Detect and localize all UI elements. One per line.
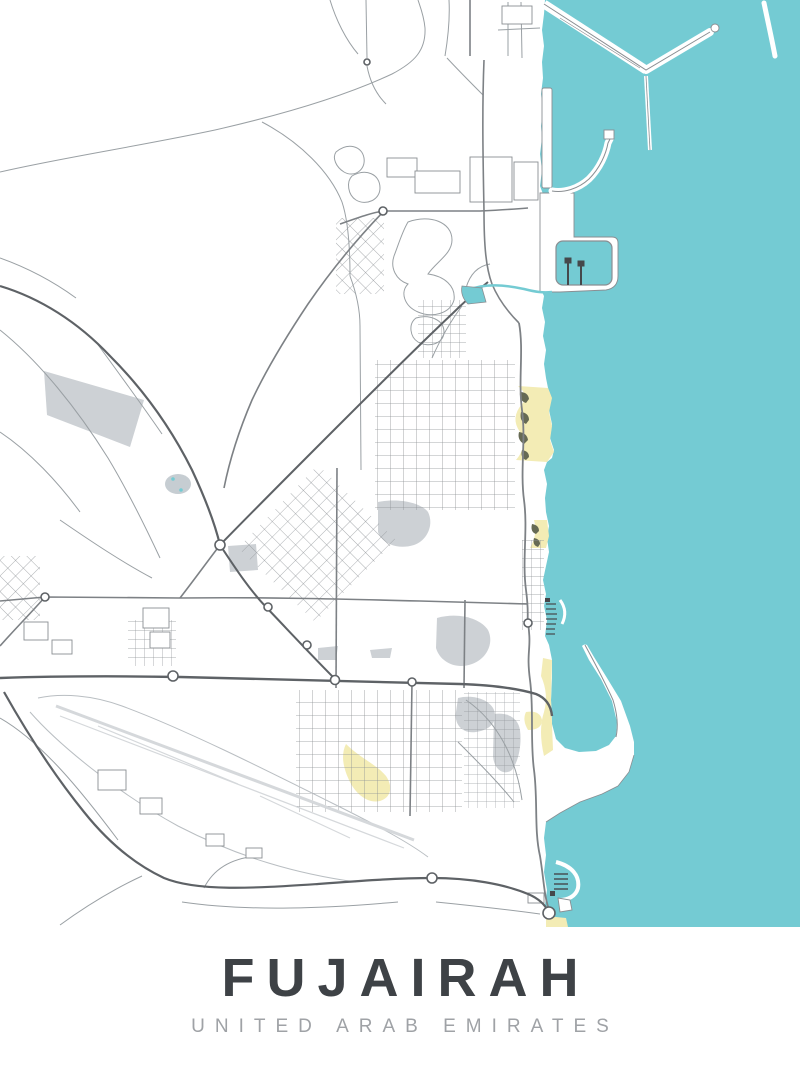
map-poster: FUJAIRAH UNITED ARAB EMIRATES (0, 0, 800, 1067)
map-canvas (0, 0, 800, 928)
quay-strip (542, 88, 552, 188)
poster-subtitle: UNITED ARAB EMIRATES (0, 1016, 800, 1038)
poster-title: FUJAIRAH (0, 950, 800, 1007)
pond (165, 474, 191, 494)
lagoon (462, 286, 486, 304)
city-map (0, 0, 800, 928)
title-block: FUJAIRAH UNITED ARAB EMIRATES (0, 928, 800, 1067)
mole-tip (711, 24, 719, 32)
